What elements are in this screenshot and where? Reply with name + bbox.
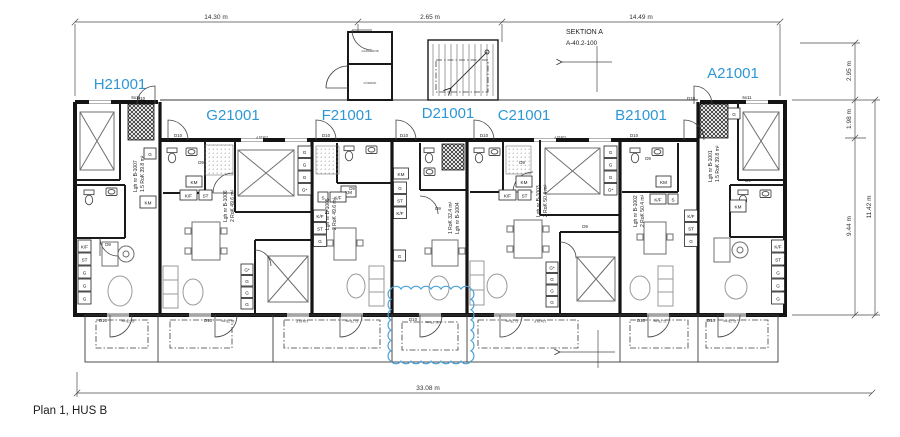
cabinet-label: ST: [203, 194, 209, 199]
apartment-id-label: H21001: [94, 76, 147, 93]
apartment-id-label: D21001: [422, 105, 475, 122]
terrace-area-label: 11.75 m²: [221, 319, 235, 323]
apartment-id-label: A21001: [707, 65, 759, 82]
cabinet-label: KM: [660, 180, 667, 185]
apartment-id-label: C21001: [498, 107, 551, 124]
door-tag: D10: [480, 133, 489, 138]
apartment-id-label: B21001: [615, 107, 667, 124]
cabinet-label: KM: [145, 201, 152, 206]
section-marker-top: SEKTION A A-40.2-100: [562, 29, 612, 92]
unit-b: KM K/F S K/F ST G Lgh nr B-1002 2 RoK 50…: [622, 120, 704, 306]
door-tag: D9: [198, 160, 204, 165]
cabinet-label: G: [83, 271, 87, 276]
cabinet-label: ST: [688, 227, 694, 232]
dim-right-total: 11.42 m: [866, 195, 873, 218]
cabinet-label: G: [83, 284, 87, 289]
door-tag: D9: [519, 160, 525, 165]
cabinet-label: K/F: [654, 198, 661, 203]
cabinet-label: G: [303, 175, 307, 180]
cabinet-label: G*: [608, 188, 614, 193]
unit-lgh-number: Lgh nr B-1002: [633, 195, 639, 227]
apartment-id-label: F21001: [322, 107, 373, 124]
unit-lgh-number: Lgh nr B-1006: [223, 190, 229, 222]
window-tag: 10x15 F: [256, 135, 268, 139]
window-tag: 10x15 F: [554, 135, 566, 139]
unit-h: G KM K/F ST G G G Lgh nr B-1007 1.5 RoK …: [75, 86, 156, 306]
cabinet-label: K/F: [774, 245, 781, 250]
door-tag: D10: [630, 133, 639, 138]
cabinet-label: KM: [521, 180, 528, 185]
cabinet-label: G: [609, 175, 613, 180]
apartment-id-label: G21001: [206, 107, 259, 124]
terrace-area-label: 11.75 m²: [723, 319, 737, 323]
unit-f: KM S K/F K/F ST G Lgh nr B-1005 2 RoK 49…: [314, 120, 393, 306]
unit-g: G G G G* KM K/F ST G* G G G Lgh nr B-100…: [163, 120, 312, 315]
cabinet-label: G: [689, 239, 693, 244]
cabinet-label: KM: [191, 180, 198, 185]
floor-plan-svg: 14.30 m 2.65 m 14.49 m 2.95 m 1.98 m 9.4…: [0, 0, 900, 437]
window-tag: 6x11: [742, 95, 752, 100]
cabinet-label: ST: [775, 258, 781, 263]
door-tag: D9: [435, 206, 441, 211]
door-tag: D9: [745, 178, 751, 183]
door-tag: D9: [645, 156, 651, 161]
door-tag: D10: [322, 133, 331, 138]
unit-a: G KM K/F ST G G G Lgh nr B-1001 1.5 RoK …: [687, 86, 785, 304]
section-ref: A-40.2-100: [566, 40, 598, 47]
garderob-label: GARDEROB: [361, 49, 378, 53]
terrace-area-label: 11.75 m²: [345, 319, 359, 323]
cabinet-label: G: [776, 271, 780, 276]
cabinet-label: G: [732, 112, 736, 117]
dimension-right: 2.95 m 1.98 m 9.44 m 11.42 m: [792, 40, 880, 318]
dim-right-upper: 2.95 m: [846, 61, 853, 81]
cabinet-label: G: [609, 150, 613, 155]
cabinet-label: G: [245, 302, 249, 307]
unit-lgh-number: Lgh nr B-1007: [133, 160, 139, 192]
unit-c: G G G G* KM K/F ST G* G G G Lgh nr B-100…: [470, 120, 620, 315]
cabinet-label: G: [550, 289, 554, 294]
cabinet-label: ST: [397, 199, 403, 204]
cabinet-label: G: [550, 277, 554, 282]
door-tag: D10: [400, 133, 409, 138]
terrace-band: D10 D10 D10 D10 D10 11.75 m² 11.75 m² 11…: [85, 315, 778, 362]
terrace-area-label: 11.75 m²: [425, 320, 439, 324]
stair-core: [428, 40, 498, 100]
revision-cloud: [388, 286, 474, 363]
forrad-label: FÖRRÅD: [364, 80, 378, 85]
cabinet-label: ST: [317, 227, 323, 232]
unit-size-label: 1.5 RoK 39.8 m²: [715, 145, 721, 182]
unit-lgh-number: Lgh nr B-1005: [325, 198, 331, 230]
door-tag: D9: [349, 186, 355, 191]
cabinet-label: G*: [549, 266, 555, 271]
cabinet-label: G: [398, 186, 402, 191]
dim-bottom-total: 33.08 m: [416, 385, 440, 392]
cabinet-label: KM: [398, 172, 405, 177]
cabinet-label: K/F: [504, 194, 511, 199]
cabinet-label: K/F: [396, 211, 403, 216]
dim-top-left: 14.30 m: [204, 14, 228, 21]
cabinet-label: K/F: [185, 194, 192, 199]
terrace-area-label: 11.75 m²: [505, 319, 519, 323]
dim-right-mid: 1.98 m: [846, 109, 853, 129]
apartment-labels: H21001 G21001 F21001 D21001 C21001 B2100…: [94, 65, 759, 124]
unit-size-label: 1.5 RoK 39.8 m²: [140, 155, 146, 192]
cabinet-label: G*: [244, 268, 250, 273]
door-tag: D10: [637, 318, 646, 323]
cabinet-label: G: [245, 279, 249, 284]
cabinet-label: G: [776, 297, 780, 302]
cabinet-label: K/F: [81, 245, 88, 250]
door-tag: D10: [409, 317, 418, 322]
unit-size-label: 1 RoK 32.4 m²: [448, 201, 454, 234]
cabinet-label: K/F: [316, 214, 323, 219]
cabinet-label: S: [671, 198, 674, 203]
dimension-bottom: 33.08 m: [74, 372, 875, 397]
dim-right-lower: 9.44 m: [846, 216, 853, 236]
unit-size-label: 2 RoK 49.6 m²: [230, 189, 236, 222]
cabinet-label: G: [148, 152, 152, 157]
cabinet-label: G: [609, 163, 613, 168]
drawing-title: Plan 1, HUS B: [33, 405, 107, 417]
architectural-drawing-page: 14.30 m 2.65 m 14.49 m 2.95 m 1.98 m 9.4…: [0, 0, 900, 437]
section-title: SEKTION A: [566, 29, 603, 36]
cabinet-label: G: [550, 300, 554, 305]
porch-storage: GARDEROB FÖRRÅD: [326, 30, 392, 100]
dim-top-mid: 2.65 m: [420, 14, 440, 21]
cabinet-label: G: [303, 150, 307, 155]
cabinet-label: G: [303, 163, 307, 168]
unit-lgh-number: Lgh nr B-1003: [536, 185, 542, 217]
door-tag: D10: [707, 318, 716, 323]
unit-size-label: 2 RoK 49.6 m²: [332, 197, 338, 230]
door-tag: D9: [582, 224, 588, 229]
cabinet-label: G: [83, 297, 87, 302]
dim-top-right: 14.49 m: [629, 14, 653, 21]
door-tag: D10: [99, 318, 108, 323]
cabinet-label: ST: [82, 258, 88, 263]
unit-d: KM G ST K/F G 1 RoK 32.4 m² Lgh nr B-100…: [394, 120, 468, 300]
cabinet-label: G*: [302, 188, 308, 193]
unit-lgh-number: Lgh nr B-1001: [708, 150, 714, 182]
unit-size-label: 2 RoK 50.4 m²: [543, 184, 549, 217]
door-tag: D10: [174, 133, 183, 138]
cabinet-label: G: [318, 239, 322, 244]
terrace-area-label: 11.75 m²: [653, 319, 667, 323]
cabinet-label: G: [776, 284, 780, 289]
door-tag: D10: [137, 96, 146, 101]
unit-size-label: 2 RoK 50.4 m²: [640, 194, 646, 227]
door-tag: D10: [687, 96, 696, 101]
building-shell: 6x11 6x11 10x15 F 10x15 F 10x15 F 10x15 …: [75, 95, 785, 323]
unit-lgh-number: Lgh nr B-1004: [455, 202, 461, 234]
terrace-area-label: 11.75 m²: [121, 319, 135, 323]
cabinet-label: K/F: [687, 214, 694, 219]
cabinet-label: G: [245, 291, 249, 296]
cabinet-label: G: [398, 254, 402, 259]
cabinet-label: KM: [735, 205, 742, 210]
door-tag: D10: [204, 318, 213, 323]
door-tag: D9: [105, 242, 111, 247]
cabinet-label: ST: [522, 194, 528, 199]
